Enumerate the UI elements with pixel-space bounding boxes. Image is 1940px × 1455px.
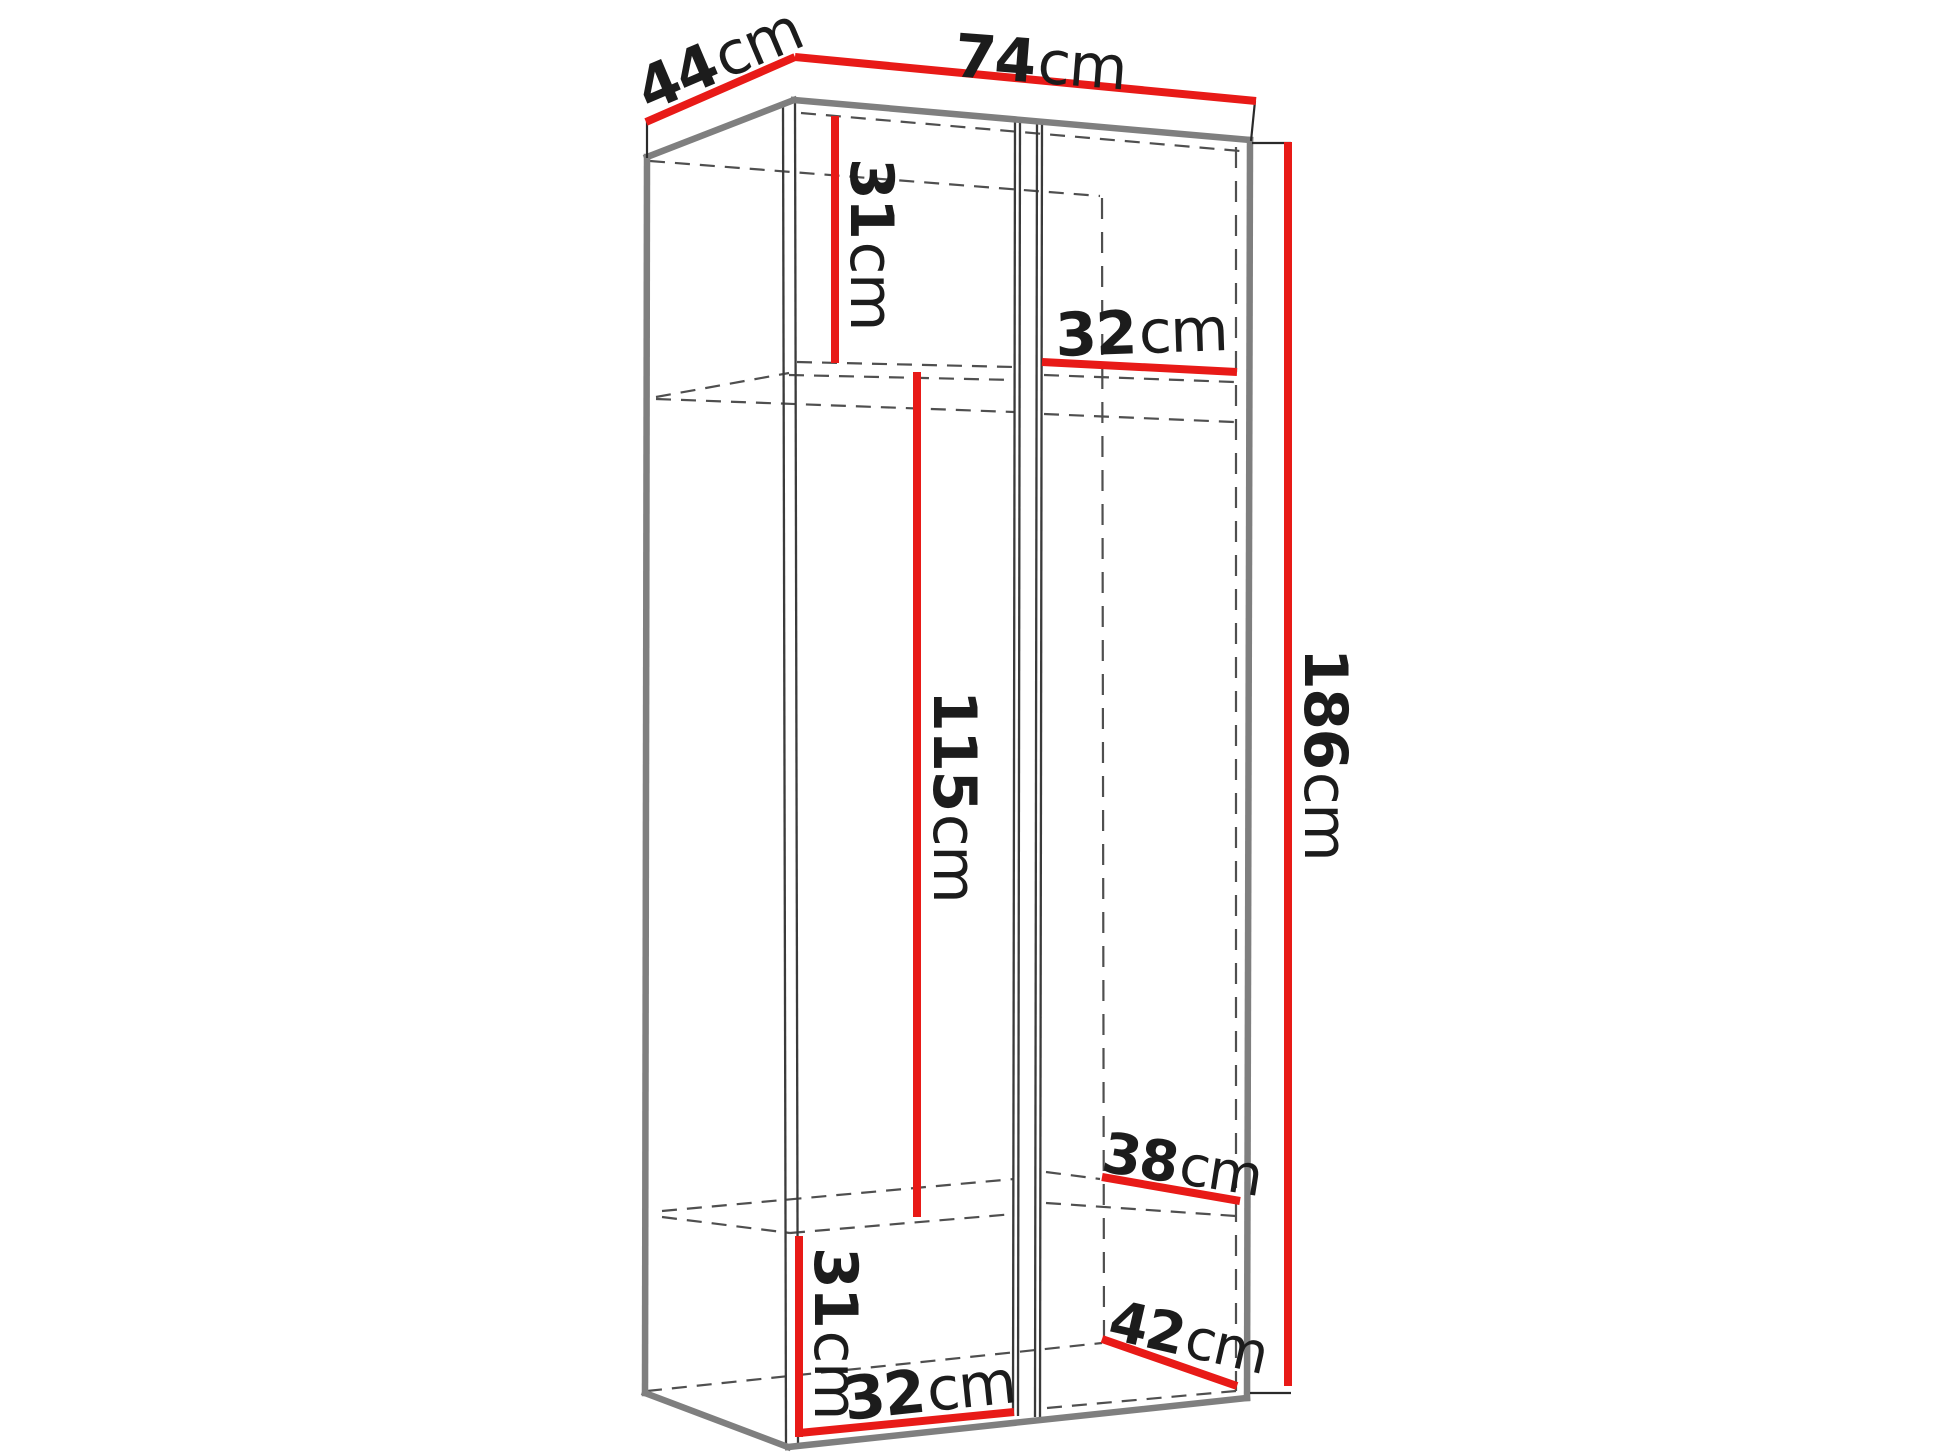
dim-label-middle-height-115: 115cm — [919, 690, 989, 902]
dim-label-upper-height-31: 31cm — [836, 158, 906, 330]
edge-bottom-left — [645, 1393, 788, 1447]
dashed-lower-shelf-top-edge — [662, 1179, 1014, 1211]
dashed-upper-shelf-left-edge — [656, 373, 789, 397]
edge-left-outer — [645, 157, 647, 1393]
dashed-upper-shelf-front-edge — [789, 375, 1014, 380]
dashed-upper-shelf-top-edge — [797, 362, 1014, 367]
front-left-panel-outer-line — [783, 103, 786, 1446]
dashed-upper-shelf-right-section-top — [1044, 375, 1234, 382]
tick-74cm-end — [1251, 101, 1255, 141]
dim-label-shelf-depth-38: 38cm — [1098, 1121, 1266, 1210]
divider-right-inner-line — [1035, 122, 1037, 1417]
divider-left-inner-line — [1018, 120, 1020, 1416]
edge-right-outer — [1247, 140, 1250, 1398]
dashed-right-shelf-back-edge — [1046, 1172, 1100, 1179]
dashed-upper-shelf-right-section-bottom — [1044, 414, 1234, 422]
diagram-page: 44cm 74cm 31cm 32cm 115cm 186cm 38cm 31c… — [0, 0, 1940, 1455]
dashed-lower-shelf-left-edge — [662, 1217, 790, 1233]
wardrobe-dimension-diagram: 44cm 74cm 31cm 32cm 115cm 186cm 38cm 31c… — [0, 0, 1940, 1455]
dashed-right-shelf-bottom-edge — [1046, 1203, 1236, 1216]
dim-label-upper-right-width-32: 32cm — [1054, 295, 1228, 371]
dim-label-width-74: 74cm — [952, 21, 1129, 104]
divider-left-outer-line — [1013, 120, 1015, 1416]
interior-edges — [783, 101, 1042, 1446]
dim-label-total-height-186: 186cm — [1290, 648, 1360, 860]
divider-right-outer-line — [1040, 122, 1042, 1418]
dashed-lower-shelf-front-edge — [790, 1214, 1014, 1233]
dashed-upper-shelf-bottom-edge — [656, 399, 1014, 412]
edge-top-front — [794, 100, 1250, 140]
